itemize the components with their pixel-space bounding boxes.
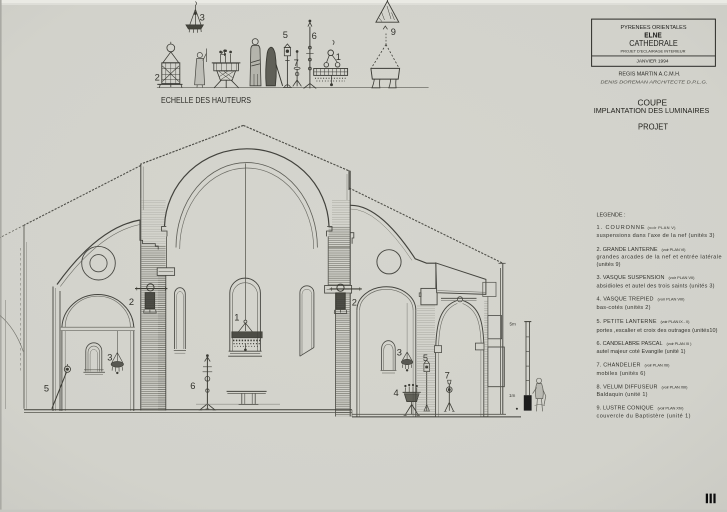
svg-text:(voir PLAN XIV): (voir PLAN XIV) [658,405,685,410]
svg-text:3: 3 [200,12,205,22]
svg-text:(voir PLAN IX - X): (voir PLAN IX - X) [661,319,691,324]
svg-text:CATHEDRALE: CATHEDRALE [629,39,678,48]
svg-text:5: 5 [283,30,288,40]
svg-text:1: 1 [234,313,239,323]
svg-text:portes ,escalier et croix des: portes ,escalier et croix des outrages (… [597,328,718,334]
svg-text:autel majeur coté Evangile (un: autel majeur coté Evangile (unité 1) [597,349,686,355]
svg-text:4: 4 [221,48,226,58]
svg-text:PROJET: PROJET [638,123,668,132]
svg-text:(voir PLAN VII): (voir PLAN VII) [669,275,696,280]
svg-text:DENIS DOREMAN ARCHITECTE D.P.L: DENIS DOREMAN ARCHITECTE D.P.L.G. [601,80,708,85]
svg-text:grandes arcades de la nef et e: grandes arcades de la nef et entrée laté… [597,255,722,261]
svg-text:2: 2 [352,297,357,307]
svg-text:4: 4 [394,388,399,398]
svg-text:couvercle du Baptistère (unité: couvercle du Baptistère (unité 1) [597,413,691,419]
svg-text:8. VELUM DIFFUSEUR: 8. VELUM DIFFUSEUR [597,385,658,391]
svg-text:7: 7 [294,58,299,68]
svg-text:IMPLANTATION DES LUMINAIRES: IMPLANTATION DES LUMINAIRES [594,106,710,115]
svg-text:6: 6 [312,31,317,41]
svg-text:suspensions dans l'axe de la n: suspensions dans l'axe de la nef (unités… [597,233,715,239]
svg-text:1m: 1m [509,393,516,398]
svg-text:LEGENDE :: LEGENDE : [597,212,626,218]
svg-text:1: 1 [336,52,341,62]
svg-text:(voir PLAN XIII): (voir PLAN XIII) [662,384,689,389]
svg-text:9. LUSTRE CONIQUE: 9. LUSTRE CONIQUE [597,406,654,412]
svg-text:5: 5 [44,383,49,393]
svg-text:5. PETITE LANTERNE: 5. PETITE LANTERNE [597,319,657,325]
svg-text:1. COURONNE: 1. COURONNE [597,225,645,231]
svg-text:JANVIER 1994: JANVIER 1994 [637,59,669,64]
svg-text:7: 7 [445,370,450,380]
svg-text:2: 2 [155,73,160,83]
svg-text:PROJET D'ECLAIRAGE INTERIEUR: PROJET D'ECLAIRAGE INTERIEUR [621,49,686,54]
svg-text:5m: 5m [510,321,517,326]
svg-text:6. CANDELABRE PASCAL: 6. CANDELABRE PASCAL [597,341,663,347]
svg-text:REGIS MARTIN A.C.M.H.: REGIS MARTIN A.C.M.H. [619,72,681,78]
svg-text:(voir PLAN XII): (voir PLAN XII) [645,363,671,368]
svg-text:bas-cotés (unités 2): bas-cotés (unités 2) [597,305,651,311]
svg-text:6: 6 [190,381,195,391]
svg-text:3. VASQUE SUSPENSION: 3. VASQUE SUSPENSION [597,275,665,281]
svg-text:3: 3 [397,347,402,357]
svg-text:(voir PLAN VIII): (voir PLAN VIII) [658,297,686,302]
svg-text:4. VASQUE TREPIED: 4. VASQUE TREPIED [597,297,654,303]
svg-text:2. GRANDE LANTERNE: 2. GRANDE LANTERNE [597,247,658,253]
svg-text:mobiles (unités 6): mobiles (unités 6) [597,371,646,377]
svg-text:(voir PLAN VI): (voir PLAN VI) [662,247,687,252]
svg-text:(voir PLAN XI ): (voir PLAN XI ) [667,341,693,346]
svg-text:7. CHANDELIER: 7. CHANDELIER [597,363,641,369]
svg-text:Baldaquin (unité 1): Baldaquin (unité 1) [597,392,648,398]
svg-text:3: 3 [107,353,112,363]
svg-text:(unités 9): (unités 9) [597,262,621,268]
svg-text:9: 9 [391,27,396,37]
svg-text:ECHELLE DES HAUTEURS: ECHELLE DES HAUTEURS [161,96,251,105]
svg-text:(voir PLAN V): (voir PLAN V) [648,225,677,230]
svg-text:2: 2 [129,297,134,307]
svg-text:absidioles et autel des trois: absidioles et autel des trois saints (un… [597,284,715,290]
